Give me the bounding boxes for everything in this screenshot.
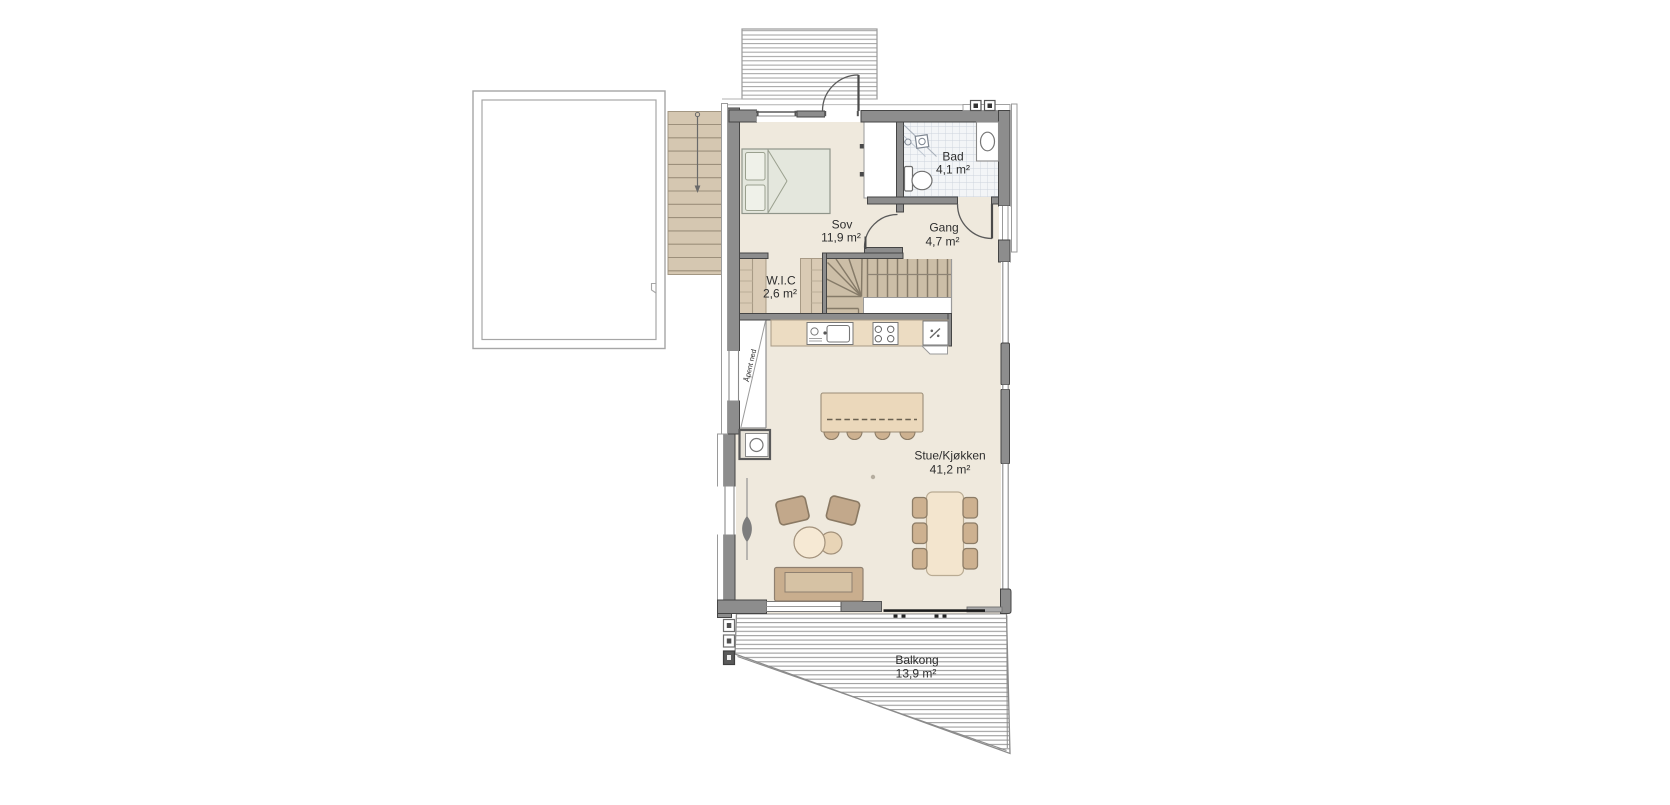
svg-text:Gang: Gang: [929, 221, 958, 235]
svg-text:2,6 m²: 2,6 m²: [763, 287, 797, 301]
svg-text:4,7 m²: 4,7 m²: [925, 235, 959, 249]
svg-text:13,9 m²: 13,9 m²: [896, 667, 937, 681]
svg-text:Sov: Sov: [832, 218, 853, 232]
svg-text:4,1 m²: 4,1 m²: [936, 163, 970, 177]
svg-text:Stue/Kjøkken: Stue/Kjøkken: [914, 449, 985, 463]
svg-text:11,9 m²: 11,9 m²: [821, 231, 861, 245]
svg-text:41,2 m²: 41,2 m²: [930, 463, 971, 477]
svg-text:Bad: Bad: [942, 150, 963, 164]
svg-text:Balkong: Balkong: [895, 653, 938, 667]
svg-text:W.I.C: W.I.C: [766, 274, 796, 288]
